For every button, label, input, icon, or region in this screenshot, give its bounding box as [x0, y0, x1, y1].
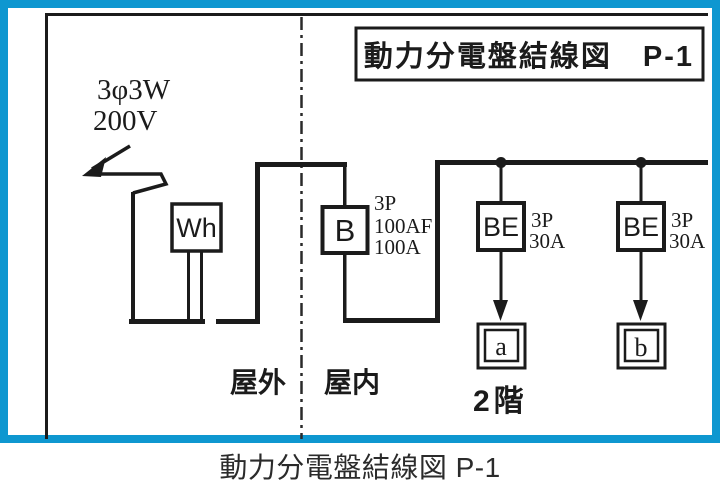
main-breaker-spec: 3P: [374, 191, 396, 215]
main-breaker-label: B: [335, 213, 356, 248]
meter-label: Wh: [176, 213, 217, 243]
meter-lead: [187, 250, 190, 320]
load-feed-line: [640, 250, 643, 302]
wire-riser: [255, 162, 260, 322]
screenshot-root: 動力分電盤結線図 P-1 3φ3W 200V: [0, 0, 720, 488]
title-box: 動力分電盤結線図 P-1: [356, 28, 703, 80]
wire-segment: [129, 319, 205, 324]
indoor-label: 屋内: [324, 367, 380, 398]
load-feed-line: [500, 250, 503, 302]
branch-breaker-spec: 30A: [529, 229, 566, 253]
wiring-diagram: 動力分電盤結線図 P-1 3φ3W 200V: [0, 0, 720, 443]
branch-breaker-label: BE: [623, 212, 659, 242]
main-breaker-spec: 100A: [374, 235, 422, 259]
frame-left-line: [45, 13, 48, 439]
wire-segment: [216, 319, 260, 324]
breaker-lead: [343, 167, 347, 208]
branch-breaker-label: BE: [483, 212, 519, 242]
junction-dot: [496, 157, 507, 168]
watt-hour-meter: Wh: [172, 204, 221, 251]
bus-line: [435, 160, 708, 165]
diagram-title: 動力分電盤結線図 P-1: [364, 39, 694, 73]
frame-top-line: [45, 13, 708, 16]
caption-text: 動力分電盤結線図 P-1: [219, 446, 500, 486]
load-label: a: [495, 332, 507, 361]
wire-segment: [131, 192, 135, 324]
caption-bar: 動力分電盤結線図 P-1: [0, 443, 720, 488]
load-terminal-a: a: [478, 324, 525, 368]
breaker-lead: [343, 253, 347, 321]
junction-dot: [636, 157, 647, 168]
supply-voltage-label: 200V: [93, 105, 158, 137]
wire-segment: [255, 162, 347, 167]
branch-lead: [500, 165, 503, 204]
wire-segment: [343, 318, 440, 323]
floor-label: 2階: [473, 385, 528, 418]
outdoor-label: 屋外: [230, 367, 286, 398]
branch-breaker-spec: 30A: [669, 229, 706, 253]
load-label: b: [635, 333, 648, 362]
meter-lead: [200, 250, 203, 320]
supply-phase-label: 3φ3W: [97, 74, 171, 106]
wire-riser: [435, 162, 440, 323]
load-terminal-b: b: [618, 324, 665, 368]
branch-lead: [640, 165, 643, 204]
